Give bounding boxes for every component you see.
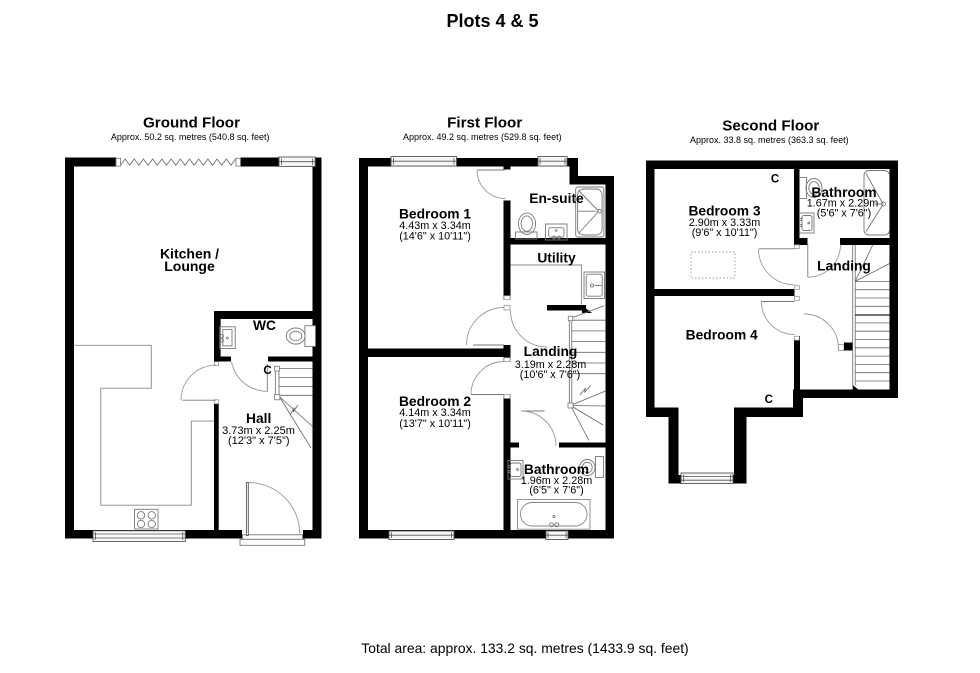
svg-text:Ground Floor: Ground Floor bbox=[143, 115, 240, 132]
svg-text:Approx. 49.2 sq. metres (529.8: Approx. 49.2 sq. metres (529.8 sq. feet) bbox=[403, 132, 562, 142]
svg-text:C: C bbox=[771, 174, 779, 186]
svg-text:Landing: Landing bbox=[817, 259, 871, 274]
svg-text:Landing: Landing bbox=[524, 344, 578, 359]
svg-text:Bedroom 4: Bedroom 4 bbox=[686, 328, 758, 343]
svg-text:Approx. 33.8 sq. metres (363.3: Approx. 33.8 sq. metres (363.3 sq. feet) bbox=[690, 135, 849, 145]
svg-text:(6'5" x 7'6"): (6'5" x 7'6") bbox=[529, 484, 583, 496]
svg-text:Total area: approx. 133.2 sq.: Total area: approx. 133.2 sq. metres (14… bbox=[361, 640, 688, 656]
svg-text:(14'6" x 10'11"): (14'6" x 10'11") bbox=[399, 230, 471, 242]
svg-text:Lounge: Lounge bbox=[164, 258, 215, 274]
svg-text:(13'7" x 10'11"): (13'7" x 10'11") bbox=[399, 418, 471, 430]
svg-text:(12'3" x 7'5"): (12'3" x 7'5") bbox=[228, 435, 290, 447]
svg-text:C: C bbox=[765, 394, 773, 406]
svg-text:Approx. 50.2 sq. metres (540.8: Approx. 50.2 sq. metres (540.8 sq. feet) bbox=[111, 132, 270, 142]
svg-text:WC: WC bbox=[253, 318, 276, 333]
svg-text:First Floor: First Floor bbox=[447, 115, 522, 132]
svg-text:Plots 4 & 5: Plots 4 & 5 bbox=[446, 11, 538, 31]
svg-text:En-suite: En-suite bbox=[529, 191, 584, 206]
svg-text:Second Floor: Second Floor bbox=[722, 118, 819, 135]
svg-text:C: C bbox=[263, 365, 271, 377]
svg-text:Hall: Hall bbox=[246, 411, 271, 426]
svg-text:Utility: Utility bbox=[537, 250, 576, 265]
svg-text:(10'6" x 7'6"): (10'6" x 7'6") bbox=[520, 369, 580, 381]
svg-text:(9'6" x 10'11"): (9'6" x 10'11") bbox=[692, 227, 758, 239]
svg-text:(5'6" x 7'6"): (5'6" x 7'6") bbox=[817, 207, 871, 219]
